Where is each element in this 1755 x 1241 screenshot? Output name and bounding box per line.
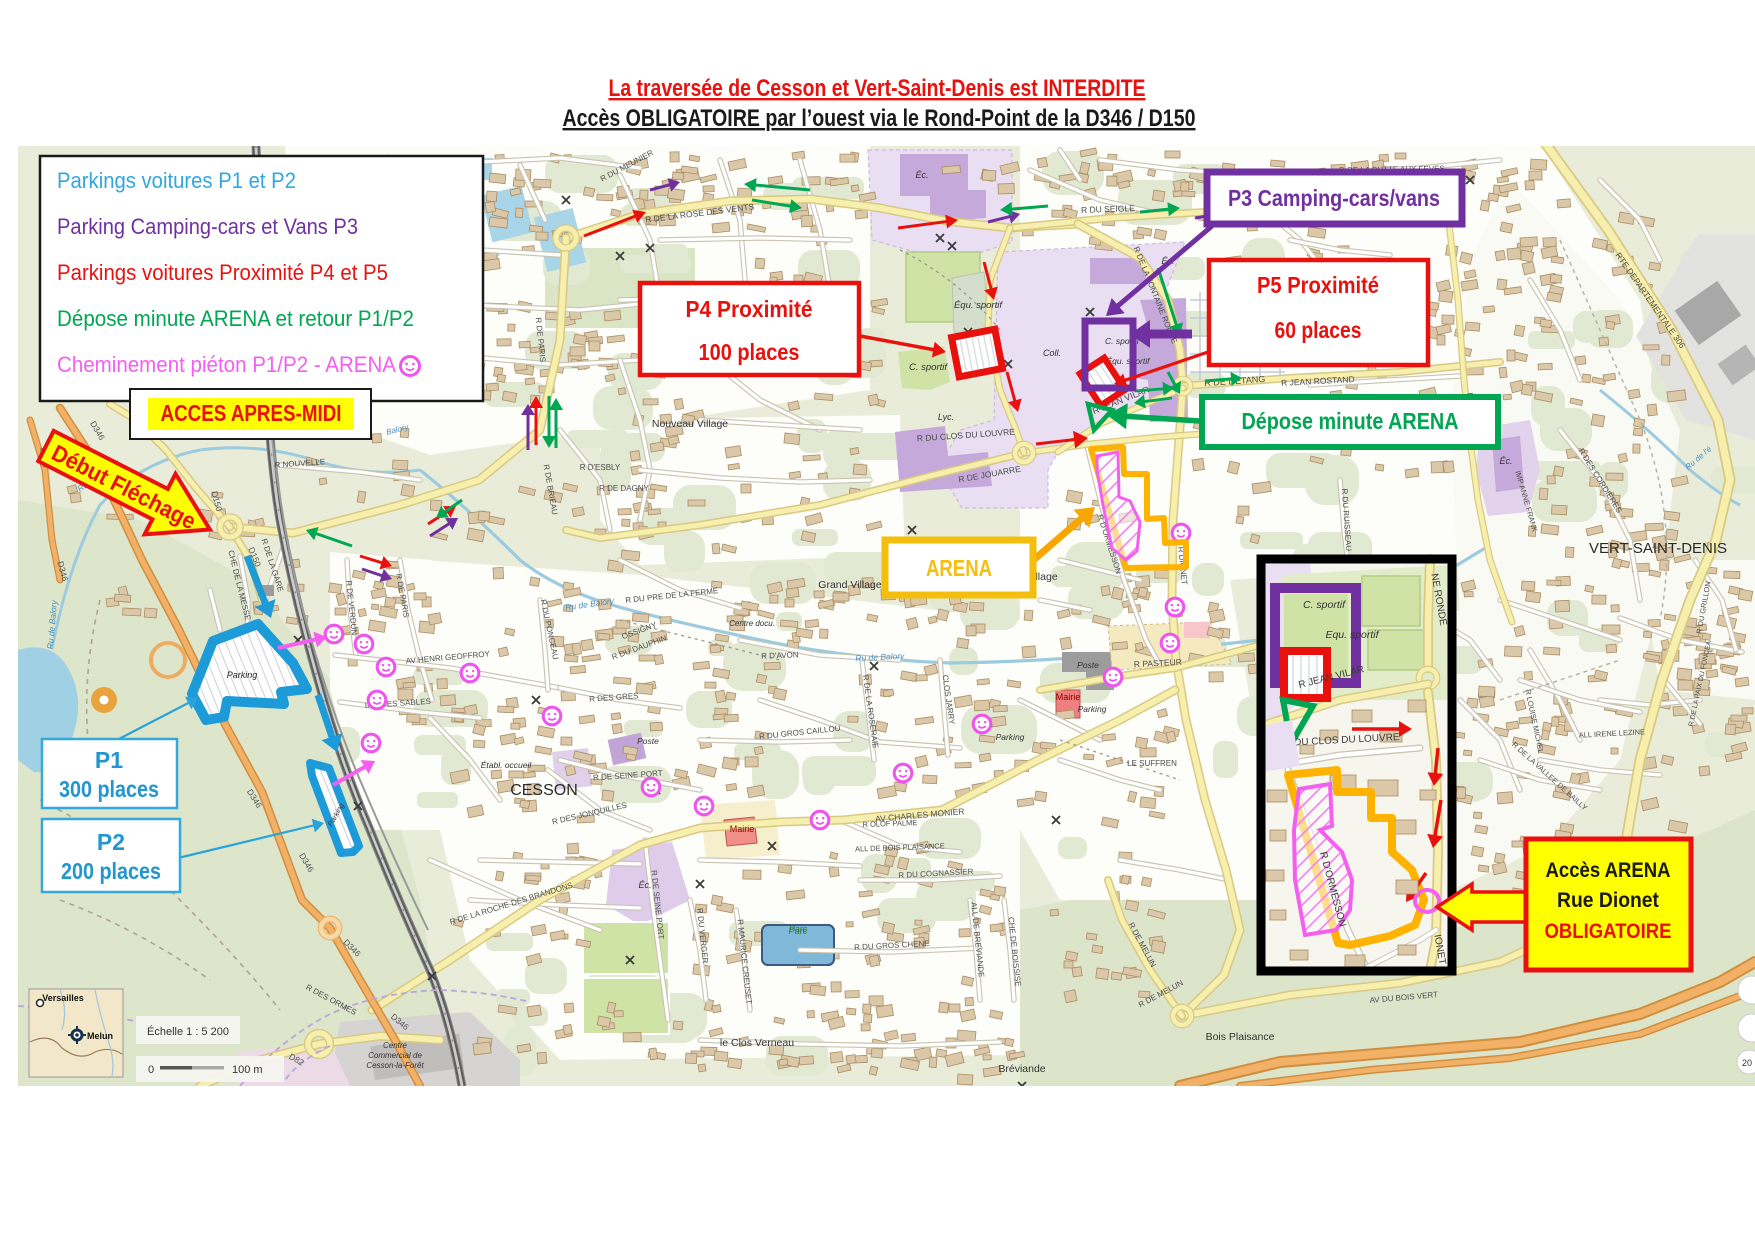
svg-text:R D'ESBLY: R D'ESBLY (580, 463, 621, 472)
svg-text:Grand Village: Grand Village (818, 579, 882, 591)
svg-text:R D'AVON: R D'AVON (761, 650, 799, 660)
svg-text:Cheminement piéton P1/P2 - ARE: Cheminement piéton P1/P2 - ARENA (57, 352, 396, 377)
svg-text:Éc.: Éc. (1499, 456, 1512, 466)
svg-text:P1: P1 (95, 747, 123, 773)
svg-text:Dépose minute ARENA: Dépose minute ARENA (1242, 408, 1459, 434)
svg-text:P5 Proximité: P5 Proximité (1257, 272, 1379, 298)
svg-text:Parking Camping-cars et Vans P: Parking Camping-cars et Vans P3 (57, 214, 358, 239)
svg-text:OBLIGATOIRE: OBLIGATOIRE (1545, 920, 1672, 943)
svg-text:Mairie: Mairie (1056, 692, 1081, 702)
svg-text:Éc.: Éc. (638, 880, 651, 890)
svg-text:Éc.: Éc. (915, 170, 928, 180)
svg-text:P4 Proximité: P4 Proximité (686, 296, 813, 322)
svg-text:0: 0 (148, 1064, 154, 1076)
svg-text:Équ. sportif: Équ. sportif (1107, 356, 1152, 366)
svg-text:60 places: 60 places (1275, 317, 1362, 343)
svg-text:VERT-SAINT-DENIS: VERT-SAINT-DENIS (1589, 540, 1727, 557)
svg-text:R DE DAGNY: R DE DAGNY (599, 484, 649, 493)
svg-text:Cesson-la-Forêt: Cesson-la-Forêt (366, 1061, 424, 1070)
svg-text:Coll.: Coll. (1043, 348, 1061, 358)
svg-text:20: 20 (1742, 1058, 1752, 1068)
svg-text:Parkings voitures P1 et P2: Parkings voitures P1 et P2 (57, 168, 296, 193)
svg-text:Centre docu.: Centre docu. (729, 619, 775, 628)
svg-text:Nouveau Village: Nouveau Village (652, 418, 728, 430)
svg-text:100 m: 100 m (232, 1064, 263, 1076)
svg-text:C. sportif: C. sportif (1303, 599, 1346, 611)
svg-text:Établ. occueil: Établ. occueil (481, 760, 533, 770)
svg-text:Versailles: Versailles (42, 993, 84, 1003)
svg-text:P3 Camping-cars/vans: P3 Camping-cars/vans (1228, 185, 1440, 211)
svg-text:Melun: Melun (87, 1031, 113, 1041)
svg-text:ACCES APRES-MIDI: ACCES APRES-MIDI (161, 400, 342, 426)
svg-text:Rue Dionet: Rue Dionet (1557, 889, 1659, 912)
svg-text:Centre: Centre (383, 1041, 408, 1050)
svg-text:Parc: Parc (789, 924, 808, 934)
svg-text:Poste: Poste (637, 736, 659, 746)
svg-text:Commercial de: Commercial de (368, 1051, 422, 1060)
svg-text:CESSON: CESSON (510, 782, 578, 799)
svg-text:LE SUFFREN: LE SUFFREN (1127, 759, 1177, 768)
svg-text:Échelle 1 : 5 200: Échelle 1 : 5 200 (147, 1025, 229, 1038)
svg-text:La traversée de Cesson et Vert: La traversée de Cesson et Vert-Saint-Den… (609, 75, 1146, 102)
svg-text:200 places: 200 places (61, 858, 161, 884)
svg-text:Bois Plaisance: Bois Plaisance (1206, 1031, 1275, 1043)
svg-text:Poste: Poste (1077, 660, 1099, 670)
svg-text:Lyc.: Lyc. (938, 412, 954, 422)
svg-text:le Clos Verneau: le Clos Verneau (720, 1037, 794, 1049)
svg-text:Bréviande: Bréviande (998, 1063, 1045, 1075)
svg-text:300 places: 300 places (59, 776, 159, 802)
svg-text:Mairie: Mairie (730, 824, 755, 834)
svg-text:Parking: Parking (227, 670, 258, 680)
svg-text:Parking: Parking (1078, 704, 1107, 714)
svg-text:P2: P2 (97, 829, 125, 855)
svg-text:R DU SEIGLE: R DU SEIGLE (1081, 203, 1135, 215)
svg-text:Parkings voitures Proximité P4: Parkings voitures Proximité P4 et P5 (57, 260, 388, 285)
svg-text:Accès ARENA: Accès ARENA (1546, 859, 1671, 882)
svg-text:R OLOF PALME: R OLOF PALME (862, 818, 917, 829)
svg-text:Accès OBLIGATOIRE par l’ouest: Accès OBLIGATOIRE par l’ouest via le Ron… (563, 105, 1196, 132)
svg-text:Équ. sportif: Équ. sportif (954, 300, 1003, 311)
svg-text:Parking: Parking (996, 732, 1025, 742)
svg-text:Dépose minute ARENA et retour: Dépose minute ARENA et retour P1/P2 (57, 306, 414, 331)
svg-text:100 places: 100 places (699, 339, 800, 365)
svg-text:ARENA: ARENA (926, 555, 992, 581)
svg-text:C. sportif: C. sportif (909, 362, 948, 373)
svg-text:Equ. sportif: Equ. sportif (1325, 629, 1379, 641)
